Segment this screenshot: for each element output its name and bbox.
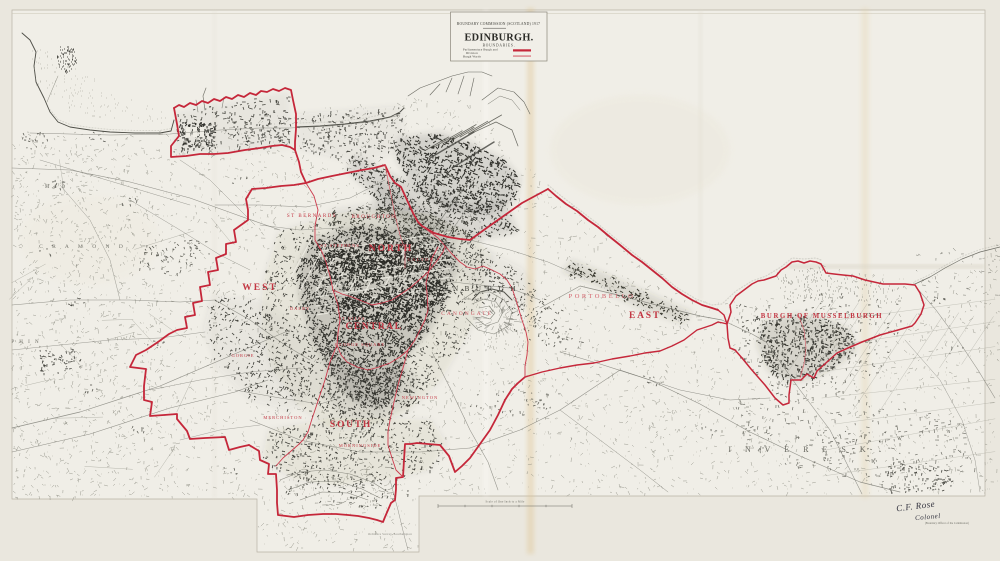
svg-text:W: W [897, 437, 903, 442]
svg-text:BROUGHTON: BROUGHTON [352, 215, 397, 220]
svg-text:DALRY: DALRY [290, 306, 310, 311]
svg-text:E D I N B U R G H: E D I N B U R G H [422, 285, 519, 293]
svg-text:Ordnance Survey, Southampton: Ordnance Survey, Southampton [368, 533, 412, 536]
svg-text:EDINBURGH.: EDINBURGH. [464, 33, 533, 44]
svg-text:BURGH OF MUSSELBURGH: BURGH OF MUSSELBURGH [761, 313, 883, 320]
svg-text:CENTRAL: CENTRAL [346, 322, 403, 332]
svg-text:M I D: M I D [45, 185, 67, 190]
svg-text:(Boundary Officer of the Commi: (Boundary Officer of the Commission) [925, 522, 969, 525]
svg-text:GEORGE SQUARE: GEORGE SQUARE [335, 342, 385, 347]
svg-text:C R A M O N D: C R A M O N D [39, 244, 127, 250]
svg-text:ST BERNARDS: ST BERNARDS [287, 214, 337, 219]
svg-text:BOUNDARY COMMISSION (SCOTLAND): BOUNDARY COMMISSION (SCOTLAND) 1917 [457, 22, 540, 26]
svg-text:CALTON: CALTON [408, 257, 435, 262]
svg-text:with parish of: with parish of [464, 297, 488, 301]
svg-text:EAST: EAST [629, 311, 661, 321]
svg-text:I N V E R E S K: I N V E R E S K [728, 445, 871, 454]
svg-text:SOUTH: SOUTH [330, 420, 372, 430]
svg-text:ST GILES: ST GILES [338, 316, 365, 321]
svg-text:MERCHISTON: MERCHISTON [263, 415, 302, 420]
svg-text:WEST: WEST [242, 283, 277, 293]
svg-text:PORTOBELLO: PORTOBELLO [569, 293, 636, 300]
svg-text:Scale of One Inch to a Mile: Scale of One Inch to a Mile [485, 501, 524, 504]
svg-text:P H I N: P H I N [11, 340, 40, 345]
svg-text:NORTH: NORTH [369, 244, 414, 254]
svg-text:CANONGATE: CANONGATE [441, 311, 493, 317]
svg-text:Burgh Wards: Burgh Wards [463, 55, 482, 59]
svg-text:MORNINGSIDE: MORNINGSIDE [339, 443, 382, 448]
svg-text:ST STEPHENS: ST STEPHENS [320, 243, 360, 248]
svg-text:NEWINGTON: NEWINGTON [402, 395, 438, 400]
svg-text:GORGIE: GORGIE [232, 353, 255, 358]
